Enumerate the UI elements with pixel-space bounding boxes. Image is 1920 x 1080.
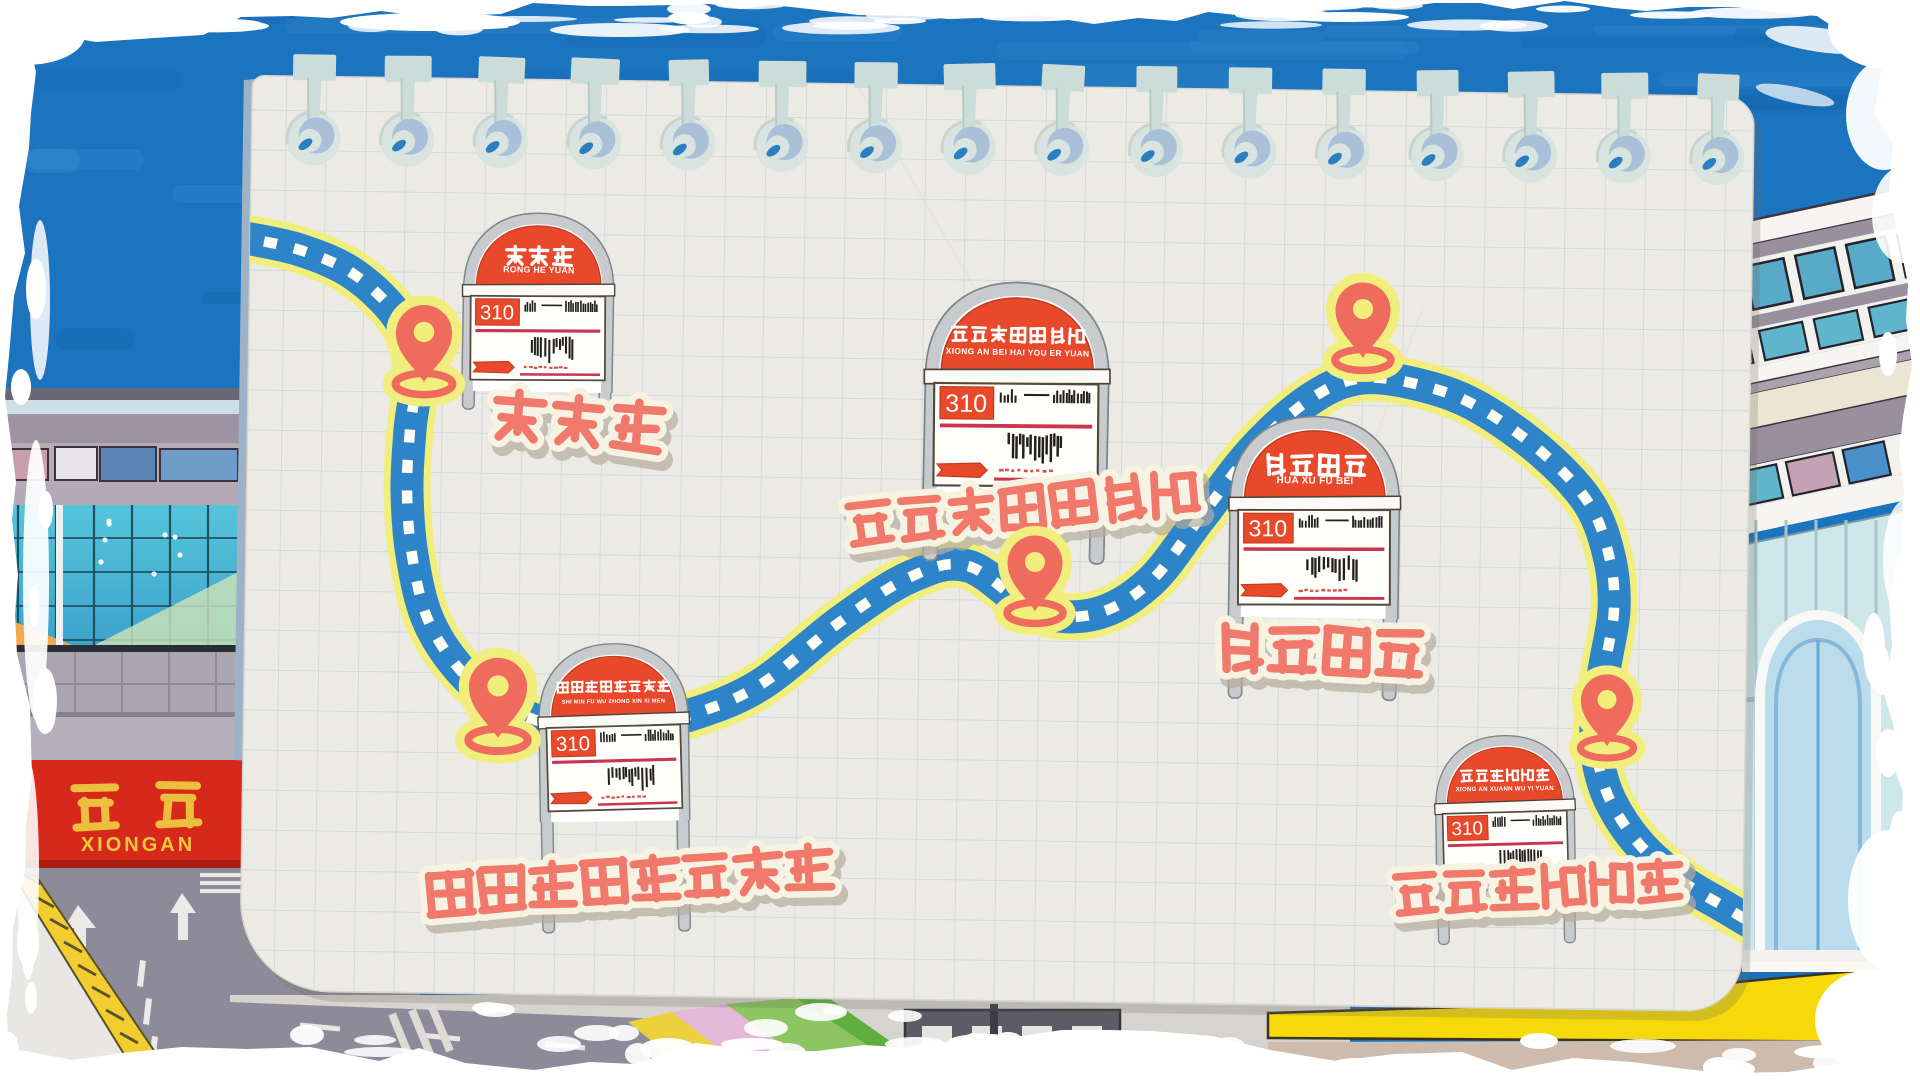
svg-text:310: 310 — [1451, 818, 1483, 840]
svg-text:HUA XU FU BEI: HUA XU FU BEI — [1276, 475, 1353, 487]
svg-text:310: 310 — [945, 390, 987, 418]
svg-text:RONG HE YUAN: RONG HE YUAN — [503, 264, 575, 275]
svg-text:XIONG AN XUANN WU YI YUAN: XIONG AN XUANN WU YI YUAN — [1456, 785, 1554, 793]
svg-text:310: 310 — [1249, 515, 1288, 541]
svg-text:310: 310 — [480, 301, 514, 324]
svg-text:XIONGAN: XIONGAN — [81, 834, 195, 856]
svg-text:310: 310 — [556, 733, 591, 756]
